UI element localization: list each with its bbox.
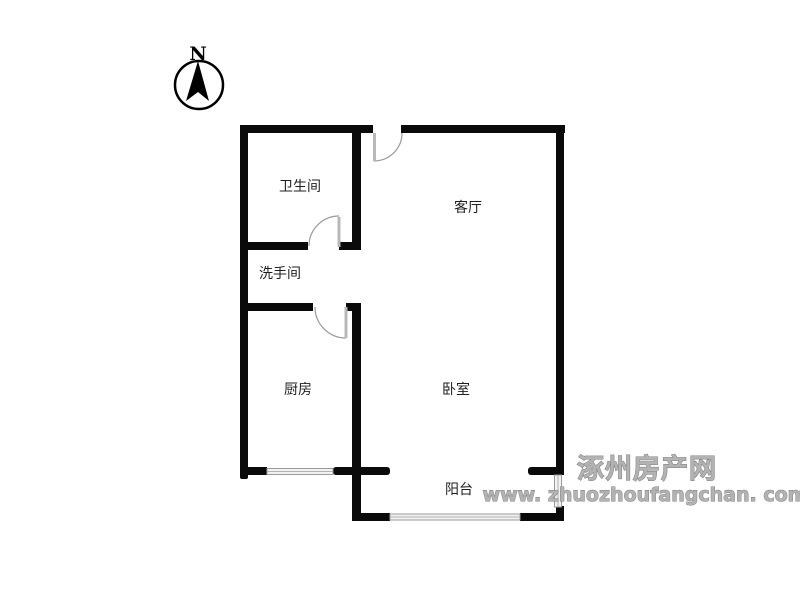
wall-kitchen-bottom-right [333, 467, 390, 475]
room-label-balcony: 阳台 [445, 482, 473, 498]
kitchen-door-arc [315, 307, 346, 338]
wall-washroom-bottom [248, 303, 313, 311]
floor-plan: N 卫生间 客厅 [0, 0, 800, 600]
entrance-door-icon [374, 133, 402, 161]
wall-bathroom-right [352, 125, 361, 250]
bathroom-door-icon [309, 216, 339, 247]
wall-bathroom-bottom [248, 242, 308, 250]
room-label-bedroom: 卧室 [442, 381, 470, 398]
room-label-living-room: 客厅 [454, 199, 482, 216]
wall-bedroom-bottom-stub [528, 467, 564, 475]
watermark: 涿州房产网 www. zhuozhoufangchan. com [483, 454, 800, 506]
bathroom-door-arc [309, 216, 339, 246]
wall-right [556, 125, 564, 475]
wall-top-right [401, 125, 565, 133]
kitchen-window-icon [267, 469, 333, 475]
balcony-window-icon [390, 514, 520, 520]
room-label-bathroom: 卫生间 [279, 179, 321, 195]
compass-needle-icon [186, 61, 209, 101]
kitchen-door-icon [315, 307, 346, 338]
wall-kitchen-bottom-left [240, 467, 267, 475]
wall-balcony-right-corner [556, 506, 564, 521]
watermark-site-name: 涿州房产网 [577, 454, 717, 485]
wall-bathroom-bottom-stub [339, 242, 361, 250]
room-label-kitchen: 厨房 [284, 382, 312, 398]
north-arrow: N [175, 43, 223, 109]
entrance-door-arc [374, 133, 402, 161]
room-label-washroom: 洗手间 [259, 266, 301, 282]
watermark-site-url: www. zhuozhoufangchan. com [483, 484, 800, 506]
wall-left [240, 125, 248, 479]
wall-kitchen-right [352, 303, 361, 521]
